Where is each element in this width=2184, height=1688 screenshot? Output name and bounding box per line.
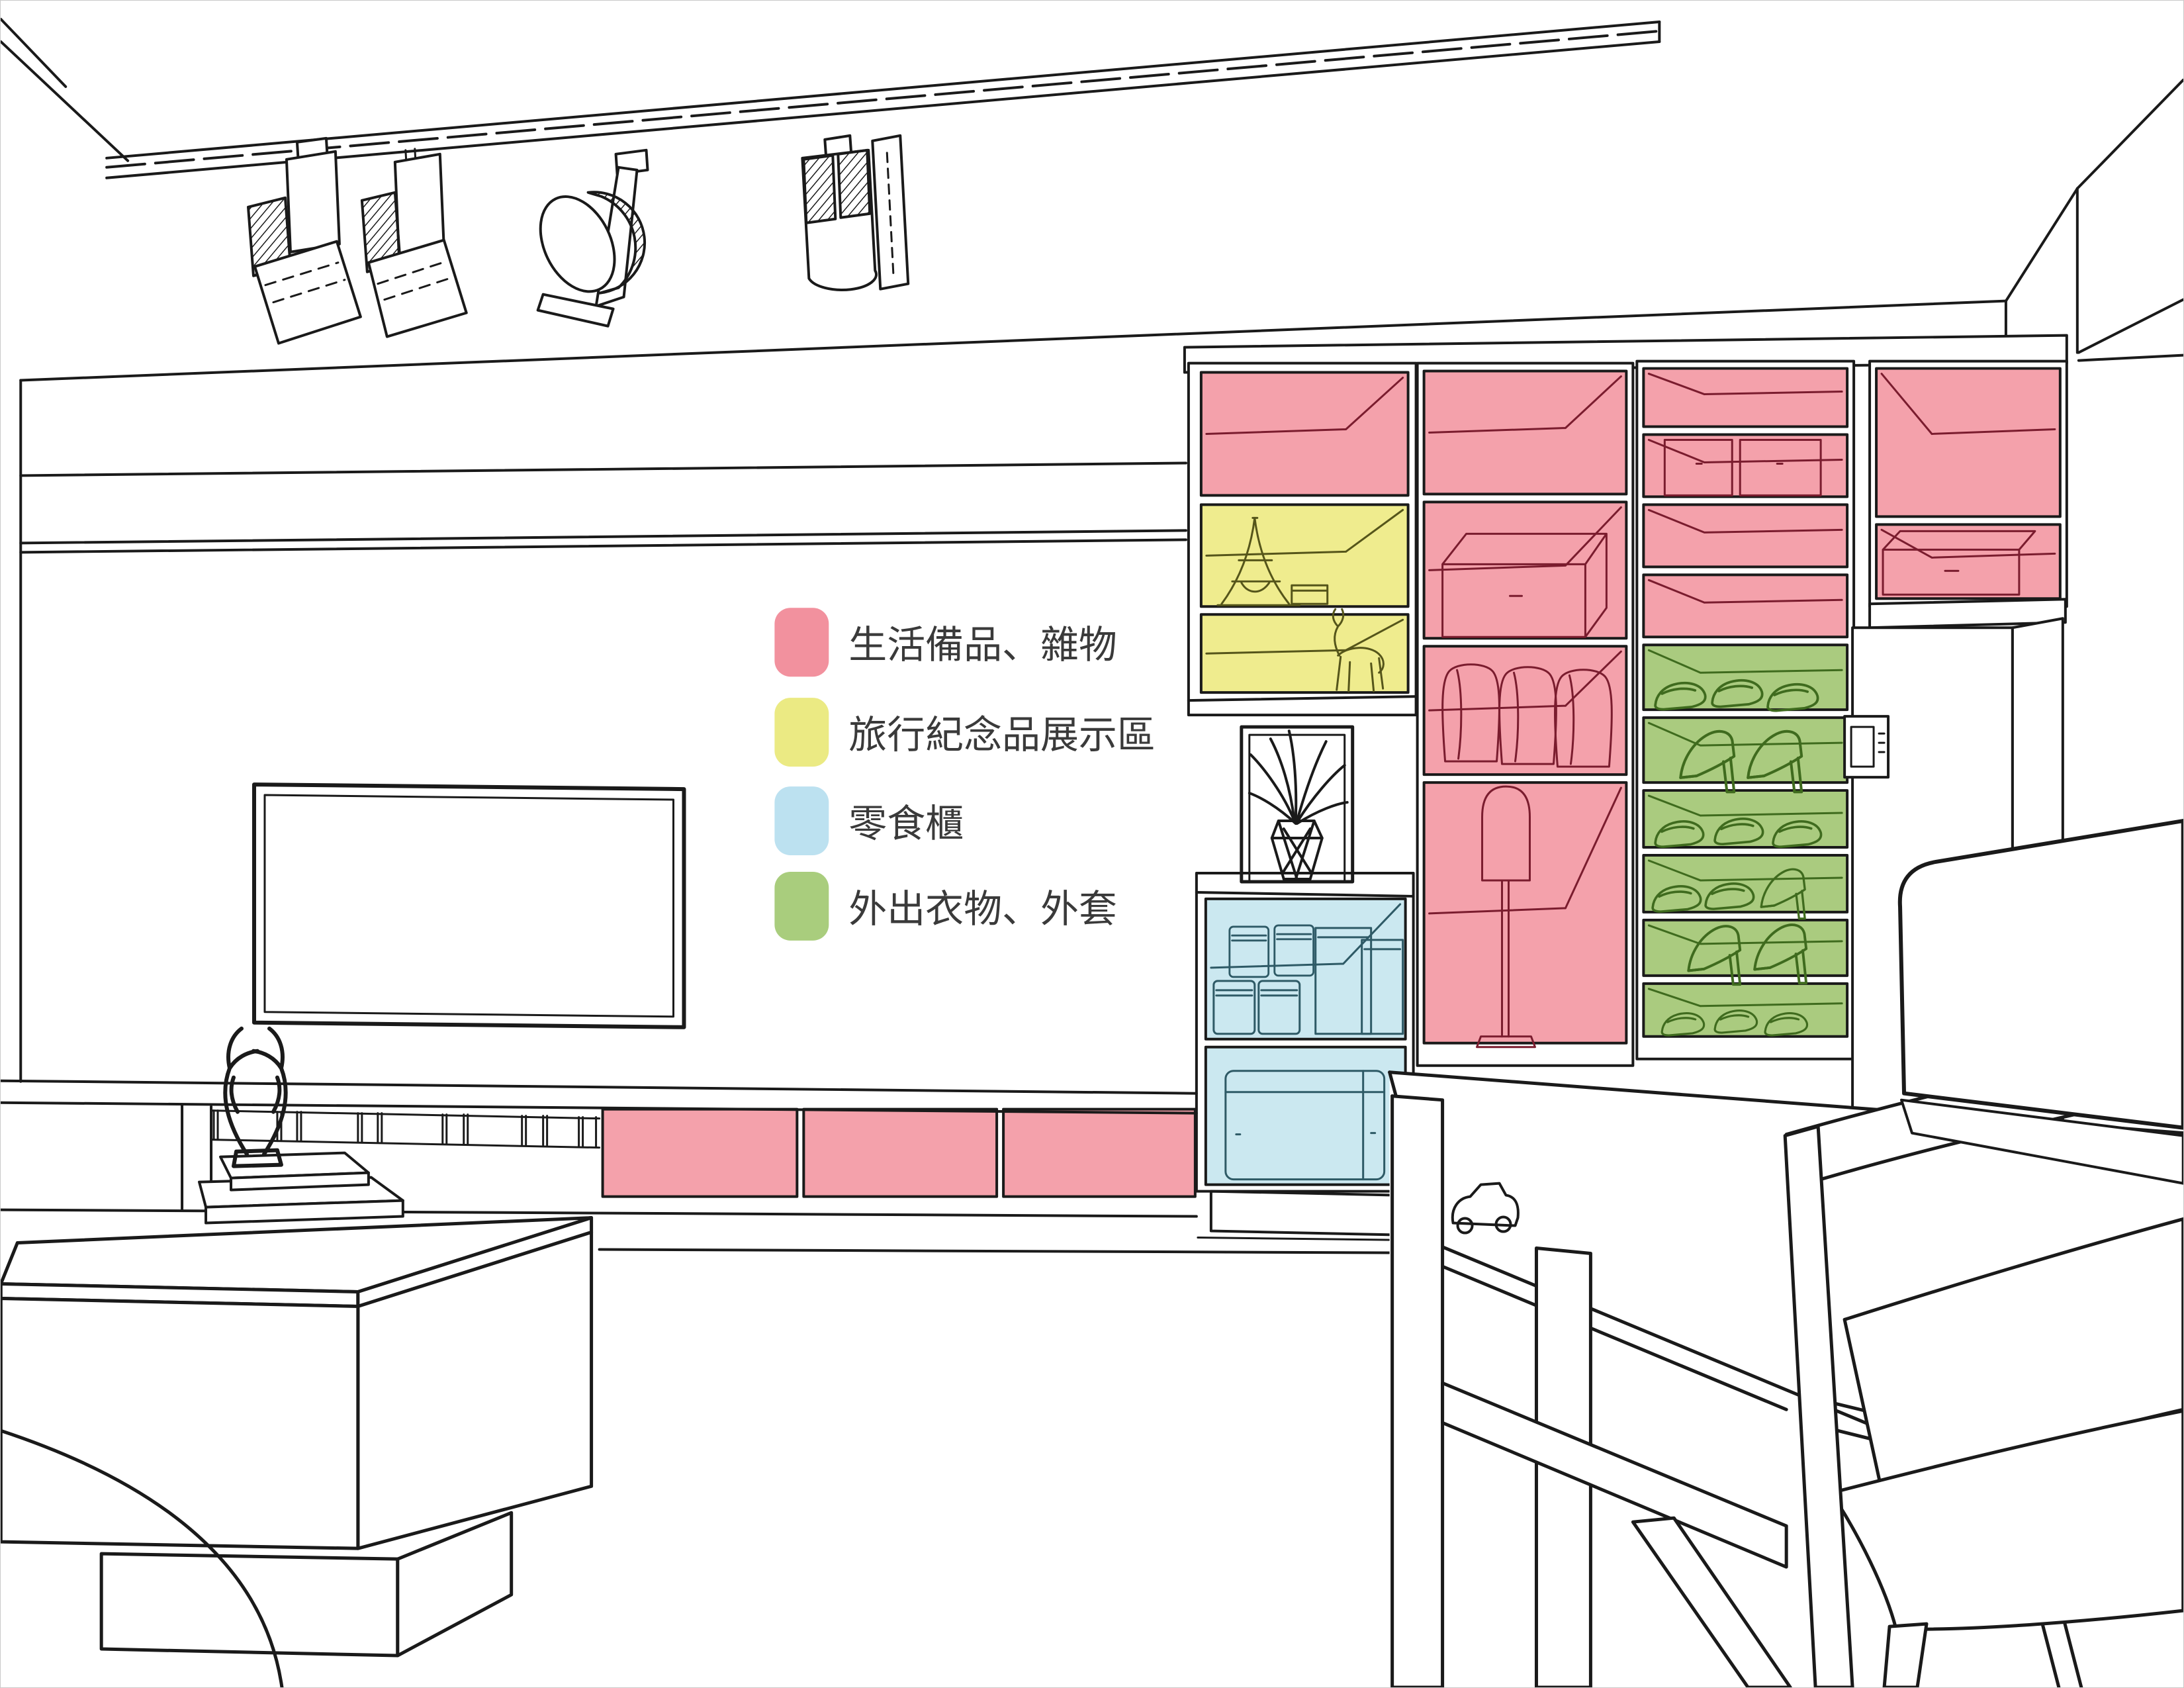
legend: 生活備品、雜物 旅行紀念品展示區 零食櫃 外出衣物、外套 xyxy=(774,608,1155,941)
legend-item-souvenir-display: 旅行紀念品展示區 xyxy=(774,698,1155,767)
track-spotlight-2 xyxy=(362,149,467,337)
tv xyxy=(254,784,684,1027)
legend-label-living-misc: 生活備品、雜物 xyxy=(848,622,1117,667)
console-drawer-3 xyxy=(1003,1109,1195,1197)
cell-outerwear-6 xyxy=(1643,984,1847,1037)
track-spotlight-3 xyxy=(525,150,647,326)
zone-souvenir-display xyxy=(1201,504,1408,692)
legend-swatch-outerwear xyxy=(774,872,829,941)
track-spotlight-4 xyxy=(802,136,908,290)
floor-line-under-unit xyxy=(1198,1238,1414,1241)
cell-living-c2 xyxy=(1643,434,1847,496)
antler-decor xyxy=(225,1029,285,1166)
plant-leaves xyxy=(1250,731,1347,823)
legend-item-outerwear: 外出衣物、外套 xyxy=(774,872,1116,941)
snack-cabinet-toe xyxy=(1211,1192,1398,1235)
interior-zoning-rendering: 生活備品、雜物 旅行紀念品展示區 零食櫃 外出衣物、外套 xyxy=(0,0,2184,1688)
legend-label-snack-cabinet: 零食櫃 xyxy=(848,801,964,846)
legend-item-snack-cabinet: 零食櫃 xyxy=(774,786,964,855)
cell-outerwear-4 xyxy=(1643,855,1847,912)
legend-item-living-misc: 生活備品、雜物 xyxy=(774,608,1116,677)
cell-living-d2 xyxy=(1876,524,2060,598)
framed-plant xyxy=(1242,727,1353,882)
books-stack xyxy=(199,1153,403,1223)
track-spotlight-1 xyxy=(248,138,361,344)
intercom-panel xyxy=(1844,716,1888,777)
cell-living-c1 xyxy=(1643,369,1847,427)
legend-label-outerwear: 外出衣物、外套 xyxy=(848,886,1117,931)
legend-label-souvenir-display: 旅行紀念品展示區 xyxy=(848,712,1156,757)
floor-line xyxy=(600,1250,1390,1253)
cell-living-c4 xyxy=(1643,575,1847,637)
cell-living-d1 xyxy=(1876,369,2060,517)
legend-swatch-living-misc xyxy=(774,608,829,677)
cell-living-c3 xyxy=(1643,504,1847,567)
cell-snack-2 xyxy=(1206,1047,1406,1185)
cell-outerwear-2 xyxy=(1643,718,1847,782)
legend-swatch-souvenir-display xyxy=(774,698,829,767)
cell-outerwear-5 xyxy=(1643,920,1847,976)
plant-vase xyxy=(1272,821,1322,879)
console-drawer-2 xyxy=(803,1109,997,1197)
legend-swatch-snack-cabinet xyxy=(774,786,829,855)
console-drawer-1 xyxy=(603,1109,797,1197)
cell-snack-1 xyxy=(1206,899,1406,1039)
